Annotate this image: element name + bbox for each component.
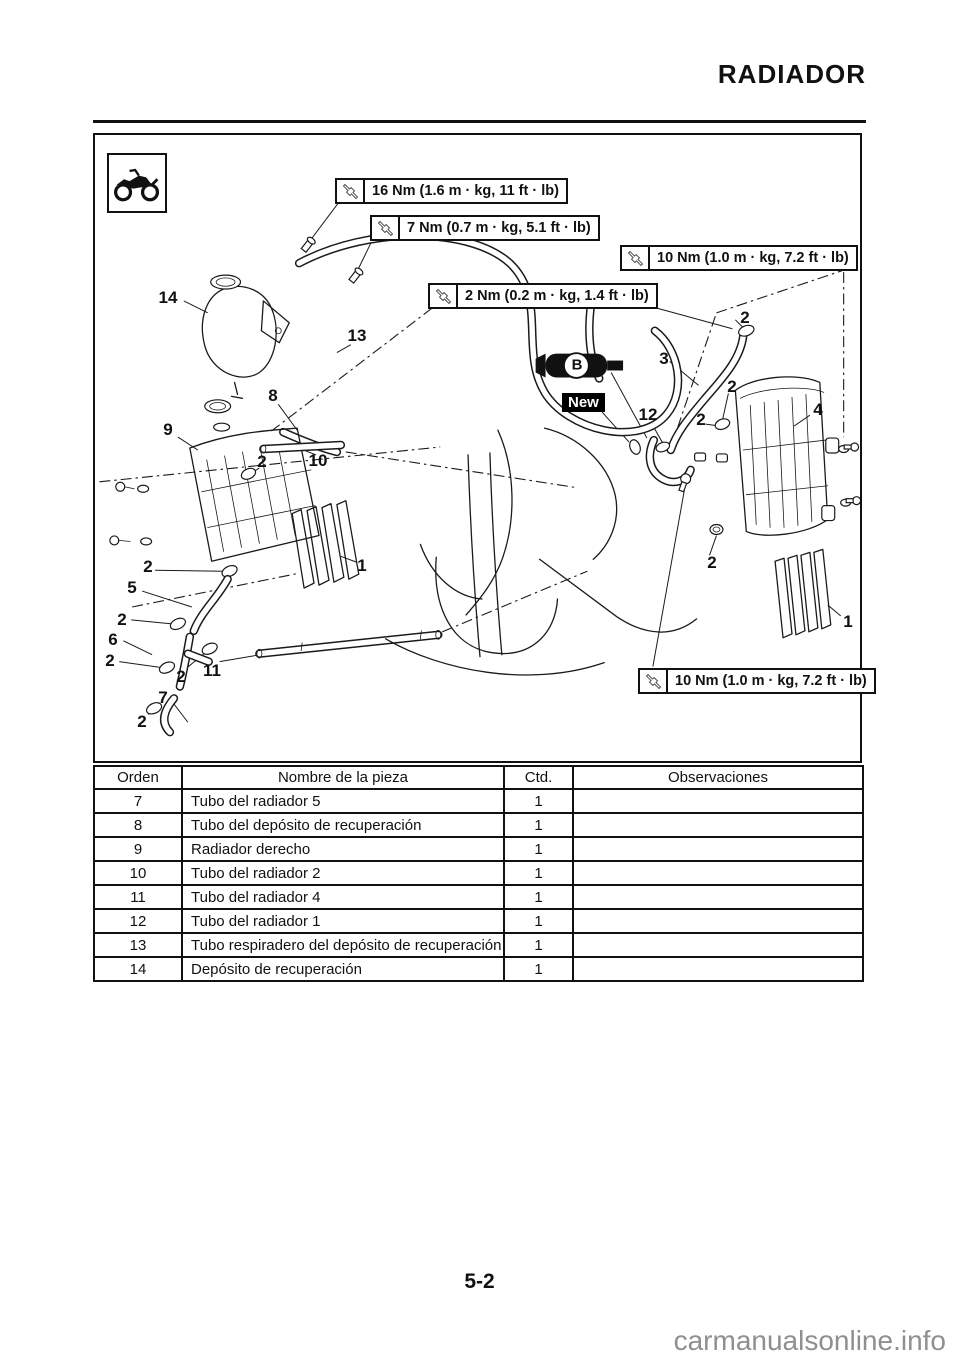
table-cell: 8 [94, 813, 182, 837]
table-cell [573, 861, 863, 885]
table-cell [573, 909, 863, 933]
left-louver-graphic [292, 501, 359, 588]
left-fasteners-graphic [110, 482, 152, 545]
page-title: RADIADOR [93, 59, 866, 90]
table-row: 11Tubo del radiador 41 [94, 885, 863, 909]
header-rule [93, 120, 866, 123]
table-row: 14Depósito de recuperación1 [94, 957, 863, 981]
wrench-icon [337, 180, 365, 202]
wrench-icon [640, 670, 668, 692]
torque-callout-2nm: 2 Nm (0.2 m · kg, 1.4 ft · lb) [428, 283, 658, 309]
parts-table: Orden Nombre de la pieza Ctd. Observacio… [93, 765, 864, 982]
table-row: 13Tubo respiradero del depósito de recup… [94, 933, 863, 957]
table-cell: 1 [504, 957, 573, 981]
table-cell [573, 837, 863, 861]
table-cell: Tubo del radiador 2 [182, 861, 504, 885]
wrench-icon [372, 217, 400, 239]
tool-b-label: B [572, 357, 583, 374]
table-cell: Tubo del depósito de recuperación [182, 813, 504, 837]
table-cell: 1 [504, 933, 573, 957]
table-cell: 13 [94, 933, 182, 957]
new-part-badge: New [562, 393, 605, 412]
table-cell: 1 [504, 813, 573, 837]
table-cell [573, 957, 863, 981]
col-header-ctd: Ctd. [504, 766, 573, 789]
table-cell: 9 [94, 837, 182, 861]
parts-table-body: 7Tubo del radiador 518Tubo del depósito … [94, 789, 863, 981]
torque-label: 10 Nm (1.0 m · kg, 7.2 ft · lb) [668, 670, 874, 692]
table-cell: 1 [504, 885, 573, 909]
table-cell [573, 813, 863, 837]
table-cell: Depósito de recuperación [182, 957, 504, 981]
table-row: 10Tubo del radiador 21 [94, 861, 863, 885]
torque-callout-16nm: 16 Nm (1.6 m · kg, 11 ft · lb) [335, 178, 568, 204]
torque-label: 10 Nm (1.0 m · kg, 7.2 ft · lb) [650, 247, 856, 269]
wrench-icon [430, 285, 458, 307]
watermark: carmanualsonline.info [674, 1325, 946, 1357]
table-row: 7Tubo del radiador 51 [94, 789, 863, 813]
manual-page: RADIADOR [0, 0, 960, 1358]
table-cell: Tubo del radiador 5 [182, 789, 504, 813]
right-radiator-graphic [695, 377, 860, 535]
page-number: 5-2 [93, 1270, 866, 1294]
table-cell: 1 [504, 909, 573, 933]
table-cell [573, 885, 863, 909]
torque-label: 7 Nm (0.7 m · kg, 5.1 ft · lb) [400, 217, 598, 239]
torque-label: 16 Nm (1.6 m · kg, 11 ft · lb) [365, 180, 566, 202]
table-cell: 10 [94, 861, 182, 885]
table-cell: 1 [504, 837, 573, 861]
table-row: 8Tubo del depósito de recuperación1 [94, 813, 863, 837]
table-header-row: Orden Nombre de la pieza Ctd. Observacio… [94, 766, 863, 789]
torque-callout-10nm-bottom: 10 Nm (1.0 m · kg, 7.2 ft · lb) [638, 668, 876, 694]
torque-label: 2 Nm (0.2 m · kg, 1.4 ft · lb) [458, 285, 656, 307]
table-cell: 1 [504, 789, 573, 813]
wrench-icon [622, 247, 650, 269]
table-cell: Tubo del radiador 4 [182, 885, 504, 909]
table-cell: 11 [94, 885, 182, 909]
table-row: 9Radiador derecho1 [94, 837, 863, 861]
table-cell: Tubo del radiador 1 [182, 909, 504, 933]
table-cell [573, 933, 863, 957]
table-cell: 1 [504, 861, 573, 885]
recovery-tank-graphic [202, 275, 289, 398]
table-cell: 14 [94, 957, 182, 981]
col-header-observaciones: Observaciones [573, 766, 863, 789]
col-header-orden: Orden [94, 766, 182, 789]
table-cell [573, 789, 863, 813]
table-row: 12Tubo del radiador 11 [94, 909, 863, 933]
phantom-lines [99, 270, 843, 632]
right-louver-graphic [775, 549, 831, 637]
left-radiator-graphic [190, 400, 319, 561]
table-cell: 12 [94, 909, 182, 933]
col-header-nombre: Nombre de la pieza [182, 766, 504, 789]
torque-callout-10nm-top: 10 Nm (1.0 m · kg, 7.2 ft · lb) [620, 245, 858, 271]
table-cell: 7 [94, 789, 182, 813]
torque-callout-7nm: 7 Nm (0.7 m · kg, 5.1 ft · lb) [370, 215, 600, 241]
table-cell: Radiador derecho [182, 837, 504, 861]
motorcycle-icon [107, 153, 167, 213]
table-cell: Tubo respiradero del depósito de recuper… [182, 933, 504, 957]
